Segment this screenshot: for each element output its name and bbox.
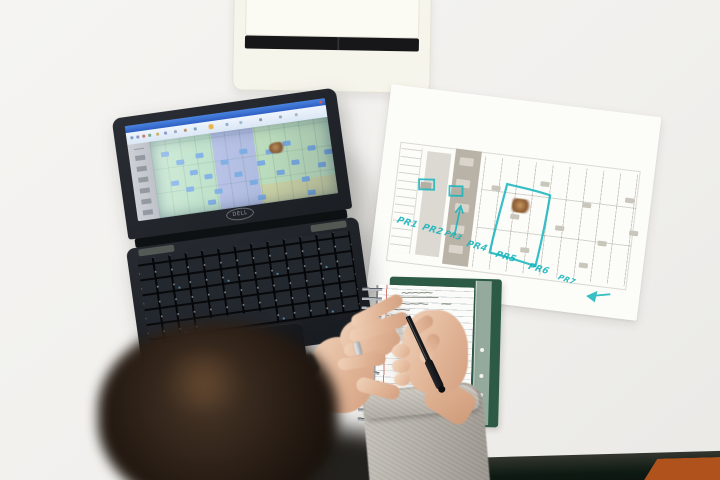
toolbar-icons (130, 136, 133, 139)
left-arrow-head (587, 291, 597, 302)
pen-end (437, 385, 446, 394)
person-head (98, 322, 338, 480)
desk-scene: DELL (0, 0, 720, 480)
cable-tray-lid (245, 0, 420, 39)
hair-highlight (156, 350, 251, 412)
window-close-icon (319, 100, 322, 103)
curled-finger-2 (392, 359, 410, 373)
palette-shape-icons (134, 148, 153, 216)
laptop-screen (125, 98, 338, 221)
curled-finger-3 (394, 373, 410, 386)
annotation-rect-1 (418, 178, 435, 191)
curled-finger-1 (392, 344, 410, 358)
cable-tray (232, 0, 432, 94)
annotation-rect-2 (448, 185, 463, 197)
dell-logo: DELL (225, 206, 254, 222)
cable-tray-slot (245, 35, 419, 51)
